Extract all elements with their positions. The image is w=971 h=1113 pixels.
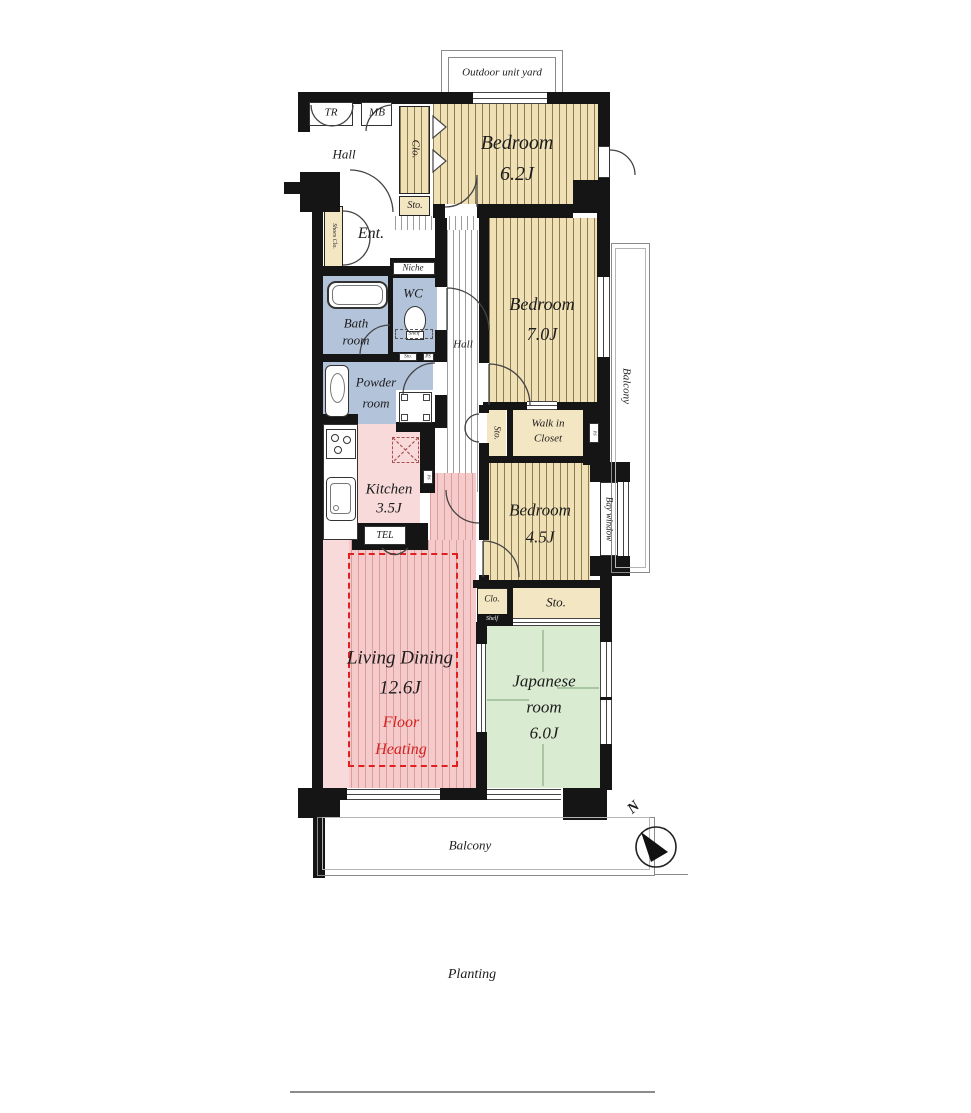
trunk-room-label: TR [325, 108, 338, 119]
bedroom1-size: 6.2J [500, 164, 534, 184]
fridge-x-mark [393, 438, 418, 462]
walkin-ps-label: PS [592, 431, 597, 436]
floor-heating-label-2: Heating [375, 742, 427, 758]
walkin-label-1: Walk in [532, 419, 565, 430]
planting-label: Planting [448, 968, 496, 982]
wc-sto-label: Sto. [404, 355, 412, 360]
powder-label-1: Powder [356, 376, 396, 389]
storage-door-arc-1 [465, 414, 479, 428]
kitchen-ps-label: PS [426, 475, 431, 480]
japanese-room-size: 6.0J [530, 725, 559, 742]
compass-needle [641, 832, 668, 862]
closet-small-label: Clo. [484, 595, 499, 604]
floor-plan: Outdoor unit yard TR MB Hall Clo. Sto. B… [0, 0, 971, 1113]
meter-box-label: MB [369, 108, 385, 119]
walkin-label-2: Closet [534, 434, 562, 445]
kitchen-size: 3.5J [376, 502, 401, 517]
bath-label-1: Bath [344, 317, 369, 330]
storage-japanese-label: Sto. [546, 596, 566, 609]
balcony-bottom-label: Balcony [449, 839, 492, 852]
tel-niche-arc [382, 548, 408, 555]
powder-door-arc [403, 363, 435, 395]
tel-label: TEL [376, 531, 393, 541]
bedroom3-label: Bedroom [509, 502, 571, 519]
closet-fold-door-2 [433, 150, 446, 172]
bedroom1-label: Bedroom [481, 133, 554, 153]
bath-label-2: room [343, 334, 370, 347]
wc-ps-label: PS [425, 355, 431, 360]
entrance-label: Ent. [358, 226, 384, 242]
niche-label: Niche [403, 264, 424, 273]
hall-mid-label: Hall [453, 340, 473, 351]
bedroom1-side-door-arc [610, 150, 635, 175]
living-dining-label: Living Dining [347, 649, 453, 668]
bedroom3-size: 4.5J [526, 529, 555, 546]
wc-door-arc [447, 288, 489, 330]
shoes-closet-label: Shoes Clo. [331, 223, 337, 249]
wc-label: WC [403, 287, 423, 300]
living-dining-size: 12.6J [379, 679, 421, 698]
balcony-right-label: Balcony [621, 368, 632, 404]
north-compass [636, 827, 676, 867]
bedroom3-door-arc [483, 541, 519, 577]
powder-label-2: room [363, 397, 390, 410]
entrance-door-arc [350, 170, 393, 212]
wc-shelf-label: Shelf [409, 331, 420, 337]
closet-shelf-label: Shelf [486, 616, 498, 622]
storage-top-label: Sto. [407, 201, 422, 211]
closet-fold-door-1 [433, 116, 446, 138]
japanese-room-label-2: room [526, 699, 561, 716]
closet-top-label: Clo. [410, 140, 421, 159]
living-door-arc [446, 490, 479, 523]
bay-window-label: Bay window [605, 497, 614, 541]
bedroom2-label: Bedroom [509, 295, 574, 313]
japanese-room-label-1: Japanese [512, 673, 575, 690]
bedroom2-size: 7.0J [527, 325, 558, 343]
shoes-closet-door-arc-2 [343, 238, 370, 265]
kitchen-label: Kitchen [366, 483, 413, 498]
storage-door-arc-2 [465, 428, 479, 442]
floor-heating-label-1: Floor [383, 715, 419, 731]
hall-upper-label: Hall [332, 148, 355, 161]
bedroom2-door-arc [489, 364, 530, 405]
plan-linework [0, 0, 971, 1113]
bedroom1-door-arc [445, 175, 477, 207]
outdoor-unit-yard-label: Outdoor unit yard [462, 68, 542, 79]
storage-mid-label: Sto. [493, 426, 502, 440]
